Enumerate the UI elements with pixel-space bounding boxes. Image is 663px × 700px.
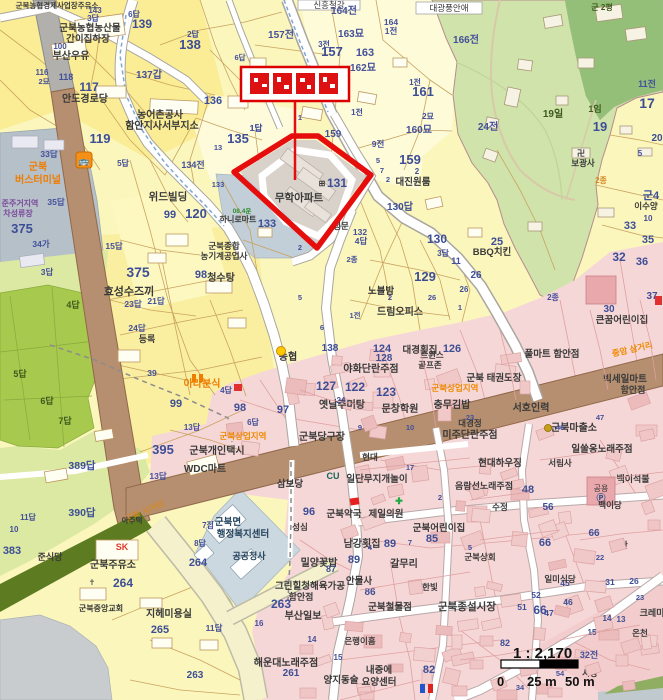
svg-text:390답: 390답 (68, 507, 96, 519)
svg-text:군북면: 군북면 (215, 516, 241, 528)
svg-text:89: 89 (384, 538, 396, 550)
svg-text:6답: 6답 (234, 52, 245, 62)
svg-text:안도경로당: 안도경로당 (62, 92, 109, 105)
svg-text:4답: 4답 (355, 236, 368, 246)
svg-text:19: 19 (593, 119, 607, 134)
svg-text:크레미: 크레미 (640, 607, 663, 618)
svg-text:39: 39 (147, 368, 157, 378)
svg-text:9: 9 (358, 423, 362, 432)
svg-text:6답: 6답 (40, 395, 54, 406)
svg-text:133: 133 (212, 180, 225, 189)
svg-text:8답: 8답 (194, 538, 206, 548)
svg-text:160묘: 160묘 (406, 124, 432, 136)
svg-text:20: 20 (651, 133, 663, 144)
svg-text:25: 25 (491, 236, 503, 248)
svg-text:263: 263 (187, 670, 204, 681)
svg-text:공용: 공용 (594, 484, 609, 493)
svg-text:157전: 157전 (268, 28, 294, 41)
svg-text:120: 120 (185, 206, 207, 221)
svg-text:준식당: 준식당 (38, 551, 64, 562)
svg-text:23: 23 (636, 593, 644, 602)
svg-text:3답: 3답 (437, 248, 449, 258)
svg-text:26: 26 (629, 576, 639, 586)
svg-text:그린힐청해육가공: 그린힐청해육가공 (275, 580, 345, 592)
svg-text:내중에: 내중에 (366, 664, 392, 676)
svg-text:보광사: 보광사 (571, 158, 595, 168)
svg-text:갈무리: 갈무리 (390, 557, 418, 570)
svg-text:32전: 32전 (580, 649, 598, 660)
svg-text:97: 97 (277, 404, 289, 416)
svg-text:군북중앙교회: 군북중앙교회 (79, 603, 123, 613)
svg-text:24: 24 (337, 396, 346, 405)
svg-text:128: 128 (376, 353, 393, 364)
svg-text:2종: 2종 (595, 176, 607, 185)
svg-text:2: 2 (415, 167, 420, 176)
svg-text:135: 135 (227, 131, 249, 146)
svg-text:3답: 3답 (87, 13, 99, 23)
svg-text:123: 123 (376, 385, 396, 399)
svg-text:11: 11 (451, 256, 461, 266)
svg-text:129: 129 (414, 269, 436, 284)
svg-text:아주택: 아주택 (122, 515, 143, 525)
svg-text:일단무지개놀이: 일단무지개놀이 (346, 473, 407, 485)
svg-text:136: 136 (204, 95, 222, 107)
svg-text:3답: 3답 (41, 267, 54, 277)
svg-text:26: 26 (460, 285, 469, 294)
svg-text:4답: 4답 (220, 385, 232, 395)
svg-text:군북상회: 군북상회 (464, 552, 495, 562)
svg-text:32: 32 (612, 250, 626, 264)
svg-text:버스터미널: 버스터미널 (15, 173, 61, 186)
svg-text:5: 5 (376, 156, 380, 165)
svg-text:풀마트 함안점: 풀마트 함안점 (524, 348, 579, 360)
svg-text:⊞: ⊞ (319, 179, 326, 188)
svg-text:11답: 11답 (20, 512, 36, 522)
svg-text:7: 7 (380, 166, 384, 175)
svg-text:1답: 1답 (250, 123, 263, 133)
svg-text:35답: 35답 (47, 197, 64, 207)
svg-text:24답: 24답 (128, 323, 145, 333)
svg-text:함안지사서부지소: 함안지사서부지소 (125, 119, 199, 132)
svg-text:음람선노래주점: 음람선노래주점 (455, 480, 513, 491)
svg-text:농어촌공사: 농어촌공사 (137, 108, 184, 121)
svg-text:117: 117 (79, 80, 99, 94)
svg-text:농기계공업사: 농기계공업사 (201, 251, 248, 261)
svg-text:11답: 11답 (206, 623, 223, 633)
svg-text:395: 395 (152, 442, 174, 457)
svg-text:85: 85 (426, 533, 438, 545)
svg-text:위드빌딩: 위드빌딩 (149, 190, 188, 203)
svg-text:22: 22 (596, 553, 604, 562)
svg-text:21답: 21답 (147, 296, 164, 306)
svg-text:2답: 2답 (187, 29, 199, 39)
svg-text:127: 127 (316, 379, 336, 393)
svg-text:08.4운: 08.4운 (233, 206, 252, 215)
svg-text:26: 26 (428, 293, 436, 302)
svg-text:26: 26 (470, 270, 482, 281)
svg-text:현대: 현대 (362, 452, 378, 462)
svg-text:2: 2 (298, 243, 302, 252)
svg-text:87: 87 (326, 564, 336, 574)
svg-text:265: 265 (151, 624, 169, 636)
svg-text:양지동술: 양지동술 (324, 674, 359, 686)
svg-text:군북: 군북 (29, 161, 47, 173)
svg-text:군북상업지역: 군북상업지역 (220, 431, 267, 441)
svg-text:서림사: 서림사 (548, 458, 572, 468)
svg-text:13: 13 (214, 143, 222, 152)
svg-text:백이석불: 백이석불 (616, 473, 649, 484)
svg-text:군북철물점: 군북철물점 (368, 601, 412, 613)
svg-text:33답: 33답 (40, 149, 57, 159)
svg-text:159: 159 (325, 129, 342, 140)
svg-text:47: 47 (544, 608, 554, 618)
svg-text:13답: 13답 (149, 471, 166, 481)
svg-text:군북종합: 군북종합 (208, 241, 239, 251)
svg-text:138: 138 (179, 37, 201, 52)
svg-text:82: 82 (500, 638, 510, 648)
svg-text:2: 2 (438, 493, 442, 502)
svg-text:군북약국: 군북약국 (327, 508, 362, 520)
svg-text:✝: ✝ (89, 578, 96, 587)
svg-text:130: 130 (427, 232, 447, 246)
svg-text:35: 35 (642, 234, 654, 246)
svg-text:군북농협경제사업장주유소: 군북농협경제사업장주유소 (16, 0, 99, 10)
svg-text:대광풍안애: 대광풍안애 (429, 3, 468, 13)
svg-text:30: 30 (603, 304, 615, 315)
svg-text:행정복지센터: 행정복지센터 (217, 528, 269, 540)
svg-text:✚: ✚ (395, 496, 403, 506)
svg-text:5: 5 (298, 293, 302, 302)
svg-text:164전: 164전 (331, 4, 357, 17)
svg-text:5답: 5답 (117, 158, 129, 168)
svg-text:383: 383 (3, 545, 21, 557)
svg-text:15답: 15답 (105, 241, 122, 251)
svg-text:89: 89 (348, 554, 360, 566)
svg-text:13: 13 (617, 615, 626, 624)
svg-text:48: 48 (522, 484, 534, 496)
svg-text:54: 54 (556, 669, 565, 678)
svg-text:25 m: 25 m (527, 674, 557, 689)
svg-text:1전: 1전 (385, 26, 398, 36)
svg-text:34: 34 (516, 683, 525, 692)
svg-text:46: 46 (563, 597, 573, 607)
svg-text:17: 17 (639, 95, 655, 111)
svg-text:이수양: 이수양 (634, 201, 658, 211)
svg-text:지헤미용실: 지헤미용실 (146, 607, 192, 620)
svg-text:137갑: 137갑 (136, 69, 163, 81)
svg-text:14: 14 (603, 614, 612, 623)
svg-text:2종: 2종 (547, 293, 559, 302)
svg-text:98: 98 (195, 269, 207, 281)
svg-text:남강횟집: 남강횟집 (344, 537, 381, 550)
svg-text:82: 82 (423, 664, 435, 676)
svg-text:0: 0 (497, 674, 504, 689)
svg-text:하니로마트: 하니로마트 (220, 214, 257, 224)
svg-text:16: 16 (255, 619, 264, 628)
svg-text:🚌: 🚌 (78, 156, 89, 166)
svg-text:대진원룸: 대진원룸 (396, 176, 431, 188)
svg-text:131: 131 (327, 176, 347, 190)
svg-text:96: 96 (303, 506, 315, 518)
svg-text:1전: 1전 (349, 310, 360, 320)
svg-text:WDC마트: WDC마트 (184, 462, 226, 475)
svg-text:375: 375 (11, 221, 33, 236)
svg-text:166전: 166전 (453, 33, 479, 46)
svg-text:함안점: 함안점 (289, 591, 314, 602)
svg-text:100: 100 (53, 42, 67, 51)
svg-text:163묘: 163묘 (338, 28, 364, 40)
svg-text:청수탕: 청수탕 (207, 271, 235, 284)
svg-text:2: 2 (388, 293, 392, 302)
svg-text:충무김밥: 충무김밥 (434, 398, 472, 411)
svg-text:47: 47 (596, 413, 604, 422)
svg-text:134전: 134전 (181, 159, 204, 170)
svg-text:10: 10 (10, 525, 19, 534)
svg-text:138: 138 (322, 343, 339, 354)
svg-text:99: 99 (170, 398, 182, 410)
svg-text:간이집하장: 간이집하장 (66, 33, 110, 45)
svg-text:19일: 19일 (543, 107, 563, 120)
svg-text:군북개인택시: 군북개인택시 (189, 444, 244, 457)
svg-text:389답: 389답 (68, 460, 96, 472)
svg-text:군북당구장: 군북당구장 (299, 430, 346, 443)
svg-text:온천: 온천 (632, 628, 648, 638)
svg-text:56: 56 (542, 502, 554, 513)
svg-text:군북종설시장: 군북종설시장 (438, 600, 496, 613)
svg-text:1임: 1임 (588, 103, 601, 114)
svg-text:卍: 卍 (577, 149, 585, 158)
svg-text:162묘: 162묘 (350, 62, 376, 74)
svg-text:군북상업지역: 군북상업지역 (432, 383, 479, 393)
svg-text:10: 10 (644, 214, 653, 223)
svg-text:2종: 2종 (346, 255, 357, 264)
svg-text:14: 14 (308, 635, 317, 644)
svg-text:큰꿈어린이집: 큰꿈어린이집 (596, 314, 648, 326)
svg-text:15: 15 (334, 653, 343, 662)
svg-text:23답: 23답 (124, 299, 141, 309)
svg-text:261: 261 (283, 668, 300, 679)
svg-text:11전: 11전 (638, 78, 656, 89)
svg-text:한빛: 한빛 (422, 582, 438, 592)
svg-text:무학아파트: 무학아파트 (275, 191, 324, 204)
svg-text:2묘: 2묘 (38, 77, 49, 86)
svg-text:52: 52 (531, 590, 541, 600)
svg-text:미주단란주점: 미주단란주점 (442, 428, 497, 441)
svg-text:함안점: 함안점 (621, 384, 646, 395)
svg-text:트윈스: 트윈스 (420, 350, 444, 360)
svg-text:6답: 6답 (128, 9, 140, 19)
svg-text:36: 36 (636, 256, 648, 268)
svg-text:5: 5 (468, 543, 472, 552)
svg-text:133: 133 (258, 218, 276, 230)
svg-text:6: 6 (320, 323, 324, 332)
svg-text:군북주유소: 군북주유소 (90, 559, 136, 571)
svg-text:23: 23 (466, 413, 474, 422)
svg-text:CU: CU (327, 471, 340, 481)
svg-text:5: 5 (638, 149, 643, 158)
svg-text:5답: 5답 (13, 368, 27, 379)
svg-text:51: 51 (517, 602, 527, 612)
svg-text:7답: 7답 (58, 415, 72, 426)
svg-text:1전: 1전 (409, 77, 421, 87)
svg-text:119: 119 (90, 131, 111, 146)
svg-text:준주거지역: 준주거지역 (2, 198, 39, 208)
svg-text:139: 139 (132, 17, 152, 31)
svg-text:1: 1 (298, 113, 302, 122)
svg-text:9전: 9전 (372, 139, 385, 149)
svg-text:116: 116 (36, 68, 49, 77)
svg-text:264: 264 (113, 576, 133, 590)
svg-text:264: 264 (189, 557, 208, 569)
svg-text:1전: 1전 (351, 107, 363, 117)
svg-text:골프존: 골프존 (418, 360, 442, 370)
svg-text:375: 375 (126, 264, 150, 280)
svg-text:118: 118 (59, 72, 74, 82)
svg-text:수정: 수정 (492, 502, 508, 512)
svg-text:4답: 4답 (66, 299, 80, 310)
svg-text:31: 31 (605, 577, 615, 587)
svg-text:SK: SK (116, 542, 129, 552)
svg-text:2묘: 2묘 (422, 112, 434, 121)
svg-text:안물사: 안물사 (346, 575, 372, 587)
svg-text:10: 10 (406, 423, 414, 432)
svg-text:34가: 34가 (32, 239, 49, 249)
svg-text:1: 1 (458, 303, 462, 312)
svg-text:122: 122 (345, 380, 365, 394)
svg-text:군 2평: 군 2평 (591, 2, 612, 12)
svg-text:은행이흠: 은행이흠 (344, 636, 375, 646)
svg-text:군북어린이집: 군북어린이집 (413, 522, 465, 534)
svg-text:제일의원: 제일의원 (369, 508, 404, 520)
svg-text:50 m: 50 m (565, 674, 595, 689)
svg-text:현대하우징: 현대하우징 (478, 457, 522, 469)
svg-text:2: 2 (386, 175, 390, 184)
svg-text:공공청사: 공공청사 (232, 550, 266, 561)
svg-text:3전: 3전 (318, 39, 330, 49)
svg-text:17: 17 (406, 463, 414, 472)
svg-text:삼보당: 삼보당 (277, 478, 303, 490)
svg-text:일쑬옹노래주점: 일쑬옹노래주점 (571, 443, 632, 455)
svg-text:일미식당: 일미식당 (544, 574, 575, 584)
svg-text:빅세일마트: 빅세일마트 (603, 373, 647, 385)
svg-text:46: 46 (556, 423, 564, 432)
svg-text:163: 163 (356, 47, 374, 59)
svg-text:6답: 6답 (247, 417, 259, 427)
svg-text:7집: 7집 (202, 520, 214, 530)
svg-text:서호인력: 서호인력 (513, 401, 550, 414)
svg-text:66: 66 (539, 537, 551, 549)
svg-text:부산일보: 부산일보 (285, 609, 322, 622)
svg-text:126: 126 (443, 343, 461, 355)
svg-text:13답: 13답 (184, 422, 201, 432)
svg-text:등록: 등록 (139, 334, 156, 344)
svg-text:요양센터: 요양센터 (362, 676, 397, 688)
svg-text:차성류장: 차성류장 (3, 208, 33, 218)
svg-text:백이당: 백이당 (598, 500, 622, 510)
svg-text:130답: 130답 (387, 201, 414, 213)
svg-text:99: 99 (164, 209, 176, 221)
svg-text:159: 159 (399, 152, 421, 167)
svg-text:7: 7 (408, 538, 412, 547)
svg-text:성심: 성심 (292, 522, 308, 532)
svg-text:군북농협농산물: 군북농협농산물 (59, 22, 120, 34)
svg-text:문창학원: 문창학원 (382, 402, 419, 415)
svg-text:98: 98 (234, 402, 246, 414)
svg-text:33: 33 (624, 220, 636, 232)
svg-text:24전: 24전 (478, 120, 498, 133)
svg-text:드림오피스: 드림오피스 (377, 305, 423, 318)
